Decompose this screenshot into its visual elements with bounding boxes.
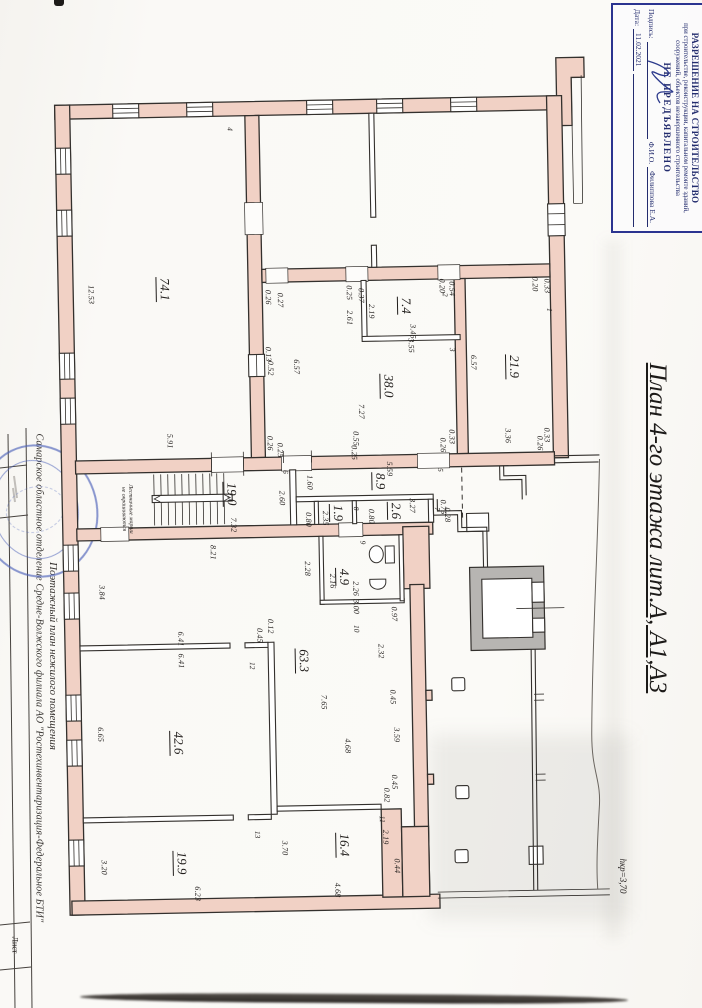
room-number-label: 11 (378, 816, 387, 823)
dimension-label: 0.12 (266, 619, 275, 634)
dimension-label: 0.26 (264, 290, 273, 305)
handwritten-signature (634, 55, 678, 119)
dimension-label: 0.37 (357, 288, 366, 303)
room-area-label: 38.0 (379, 373, 396, 398)
dimension-label: 2.19 (381, 830, 390, 845)
room-area-label: 74.1 (155, 277, 172, 302)
room-area-label: 1.9 (329, 504, 346, 523)
dimension-label: 2.16 (328, 574, 337, 589)
dimension-label: 2.28 (303, 561, 312, 576)
dimension-label: 0.33 (447, 429, 456, 444)
room-area-label: 19.0 (222, 481, 239, 506)
dimension-label: 3.36 (503, 428, 512, 443)
stairs-note: Лестничные марши не окрашиваются (119, 484, 134, 534)
dimension-label: 0.26 (439, 437, 448, 452)
dimension-label: 2.19 (367, 304, 376, 319)
dimension-label: 5.59 (385, 461, 394, 476)
dimension-label: 7.32 (229, 517, 238, 532)
dimension-label: 0.27 (276, 293, 285, 308)
room-area-label: 19.9 (172, 851, 189, 876)
room-area-label: 63.3 (295, 648, 312, 673)
dimension-label: 0.97 (390, 606, 399, 621)
room-number-label: 8 (352, 507, 361, 511)
permit-stamp-content: РАЗРЕШЕНИЕ НА СТРОИТЕЛЬСТВО при строител… (616, 9, 700, 227)
dimension-label: 2.61 (345, 310, 354, 325)
dimension-label: 2.26 (351, 581, 360, 596)
dimension-label: 0.80 (304, 512, 313, 527)
dimension-label: 0.26 (536, 436, 545, 451)
dimension-label: 0.33 (543, 278, 552, 293)
dimension-label: 1.60 (305, 475, 314, 490)
scan-mark (54, 0, 64, 6)
dimension-label: 7.27 (357, 404, 366, 419)
room-area-label: 7.4 (397, 296, 414, 315)
dimension-label: 4.68 (343, 738, 352, 753)
dimension-label: 3.20 (100, 860, 109, 875)
dimension-label: 0.44 (393, 858, 402, 873)
dimension-label: 0.20 (530, 277, 539, 292)
dimension-label: 0.25 (276, 443, 285, 458)
room-area-label: 2.6 (387, 502, 404, 521)
dimension-label: 0.45 (255, 628, 264, 643)
dimension-label: 0.52 (266, 361, 275, 376)
dimension-label: 7.65 (319, 695, 328, 710)
dimension-label: 2.32 (376, 644, 385, 659)
dimension-label: 6.23 (193, 886, 202, 901)
plan-labels-layer: Лестничные марши не окрашиваются 74.147.… (54, 83, 620, 917)
dimension-label: 0.45 (390, 774, 399, 789)
dimension-label: 6.41 (177, 654, 186, 669)
dimension-label: 5.91 (165, 434, 174, 449)
plan-type-label: Поэтажный план нежилого помещения (47, 562, 59, 750)
dimension-label: 3.27 (408, 498, 417, 513)
dimension-label: 12.53 (87, 285, 96, 304)
dimension-label: 4.68 (333, 883, 342, 898)
dimension-label: 3.00 (352, 599, 361, 614)
date-label: Дата: (633, 9, 642, 26)
room-area-label: 4.9 (335, 568, 352, 587)
dimension-label: 2.60 (278, 491, 287, 506)
dimension-label: 6.57 (469, 355, 478, 370)
room-area-label: 42.6 (169, 731, 186, 756)
dimension-label: 6.57 (292, 359, 301, 374)
dimension-label: 0.45 (388, 689, 397, 704)
dimension-label: 0.28 (443, 507, 452, 522)
fio-value: Филиппова Е.А. (647, 167, 657, 227)
dimension-label: 0.25 (350, 445, 359, 460)
dimension-label: 0.25 (345, 285, 354, 300)
signature-label: Подпись: (647, 9, 656, 39)
room-number-label: 12 (248, 662, 257, 670)
dimension-label: 3.70 (280, 841, 289, 856)
dimension-label: 0.80 (367, 509, 376, 524)
dimension-label: 0.20 (437, 278, 446, 293)
dimension-label: 3.55 (407, 338, 416, 353)
sheet-label: Лист (11, 937, 20, 954)
fio-label: Ф.И.О. (647, 142, 656, 164)
dimension-label: 3.84 (97, 585, 106, 600)
permit-title: РАЗРЕШЕНИЕ НА СТРОИТЕЛЬСТВО (690, 9, 700, 227)
dimension-label: 0.82 (382, 788, 391, 803)
room-number-label: 13 (253, 831, 262, 839)
room-number-label: 5 (436, 468, 445, 472)
room-number-label: 4 (226, 127, 235, 131)
dimension-label: 0.54 (448, 281, 457, 296)
page-title: План 4-го этажа лит.А, А1,А3 (643, 363, 671, 694)
dimension-label: 0.55 (351, 431, 360, 446)
room-area-label: 16.4 (335, 832, 352, 857)
dimension-label: 8.21 (209, 545, 218, 560)
dimension-label: 0.13 (264, 347, 273, 362)
page-edge-shadow (80, 992, 628, 1004)
building-permit-stamp: РАЗРЕШЕНИЕ НА СТРОИТЕЛЬСТВО при строител… (611, 3, 702, 233)
scanned-floorplan-page: { "colors":{ "wall":"#f1d1c5", "line":"#… (0, 0, 702, 1008)
dimension-label: 6.65 (96, 727, 105, 742)
dimension-label: 2.35 (321, 511, 330, 526)
room-number-label: 9 (359, 541, 368, 545)
room-area-label: 21.9 (505, 354, 522, 379)
room-number-label: 10 (352, 625, 361, 633)
floorplan: Лестничные марши не окрашиваются 74.147.… (54, 83, 620, 917)
dimension-label: 3.59 (392, 727, 401, 742)
room-number-label: 1 (545, 308, 554, 312)
room-number-label: 3 (448, 348, 457, 352)
dimension-label: 6.41 (176, 632, 185, 647)
room-number-label: 6 (281, 470, 290, 474)
dimension-label: 3.45 (408, 324, 417, 339)
dimension-label: 0.26 (265, 436, 274, 451)
